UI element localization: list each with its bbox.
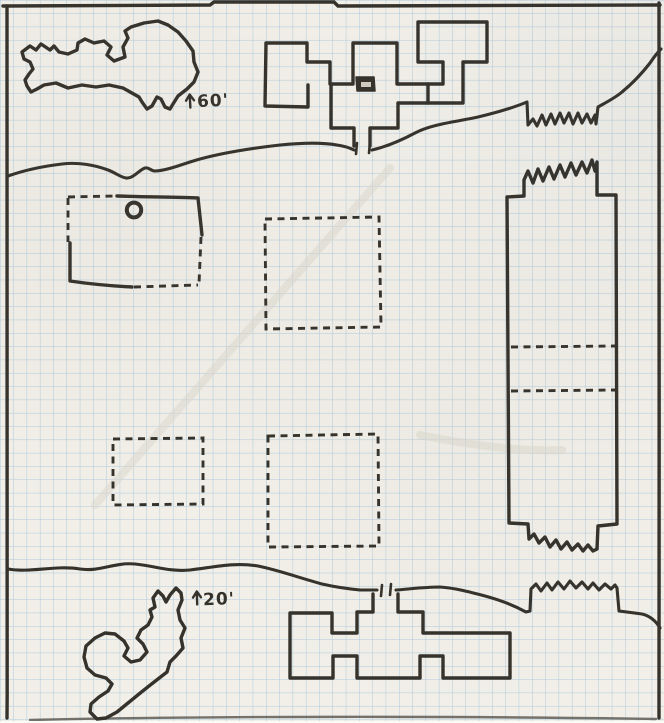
elevation-label-lower: 20' [203,589,236,610]
map-border-right [659,3,660,718]
scanned-map-page: 60' 20' [0,0,664,723]
elevation-label-upper: 60' [197,90,230,112]
dungeon-map-svg: 60' 20' [0,0,664,723]
map-border-left [7,6,8,718]
north-door-block-slot [361,82,371,87]
